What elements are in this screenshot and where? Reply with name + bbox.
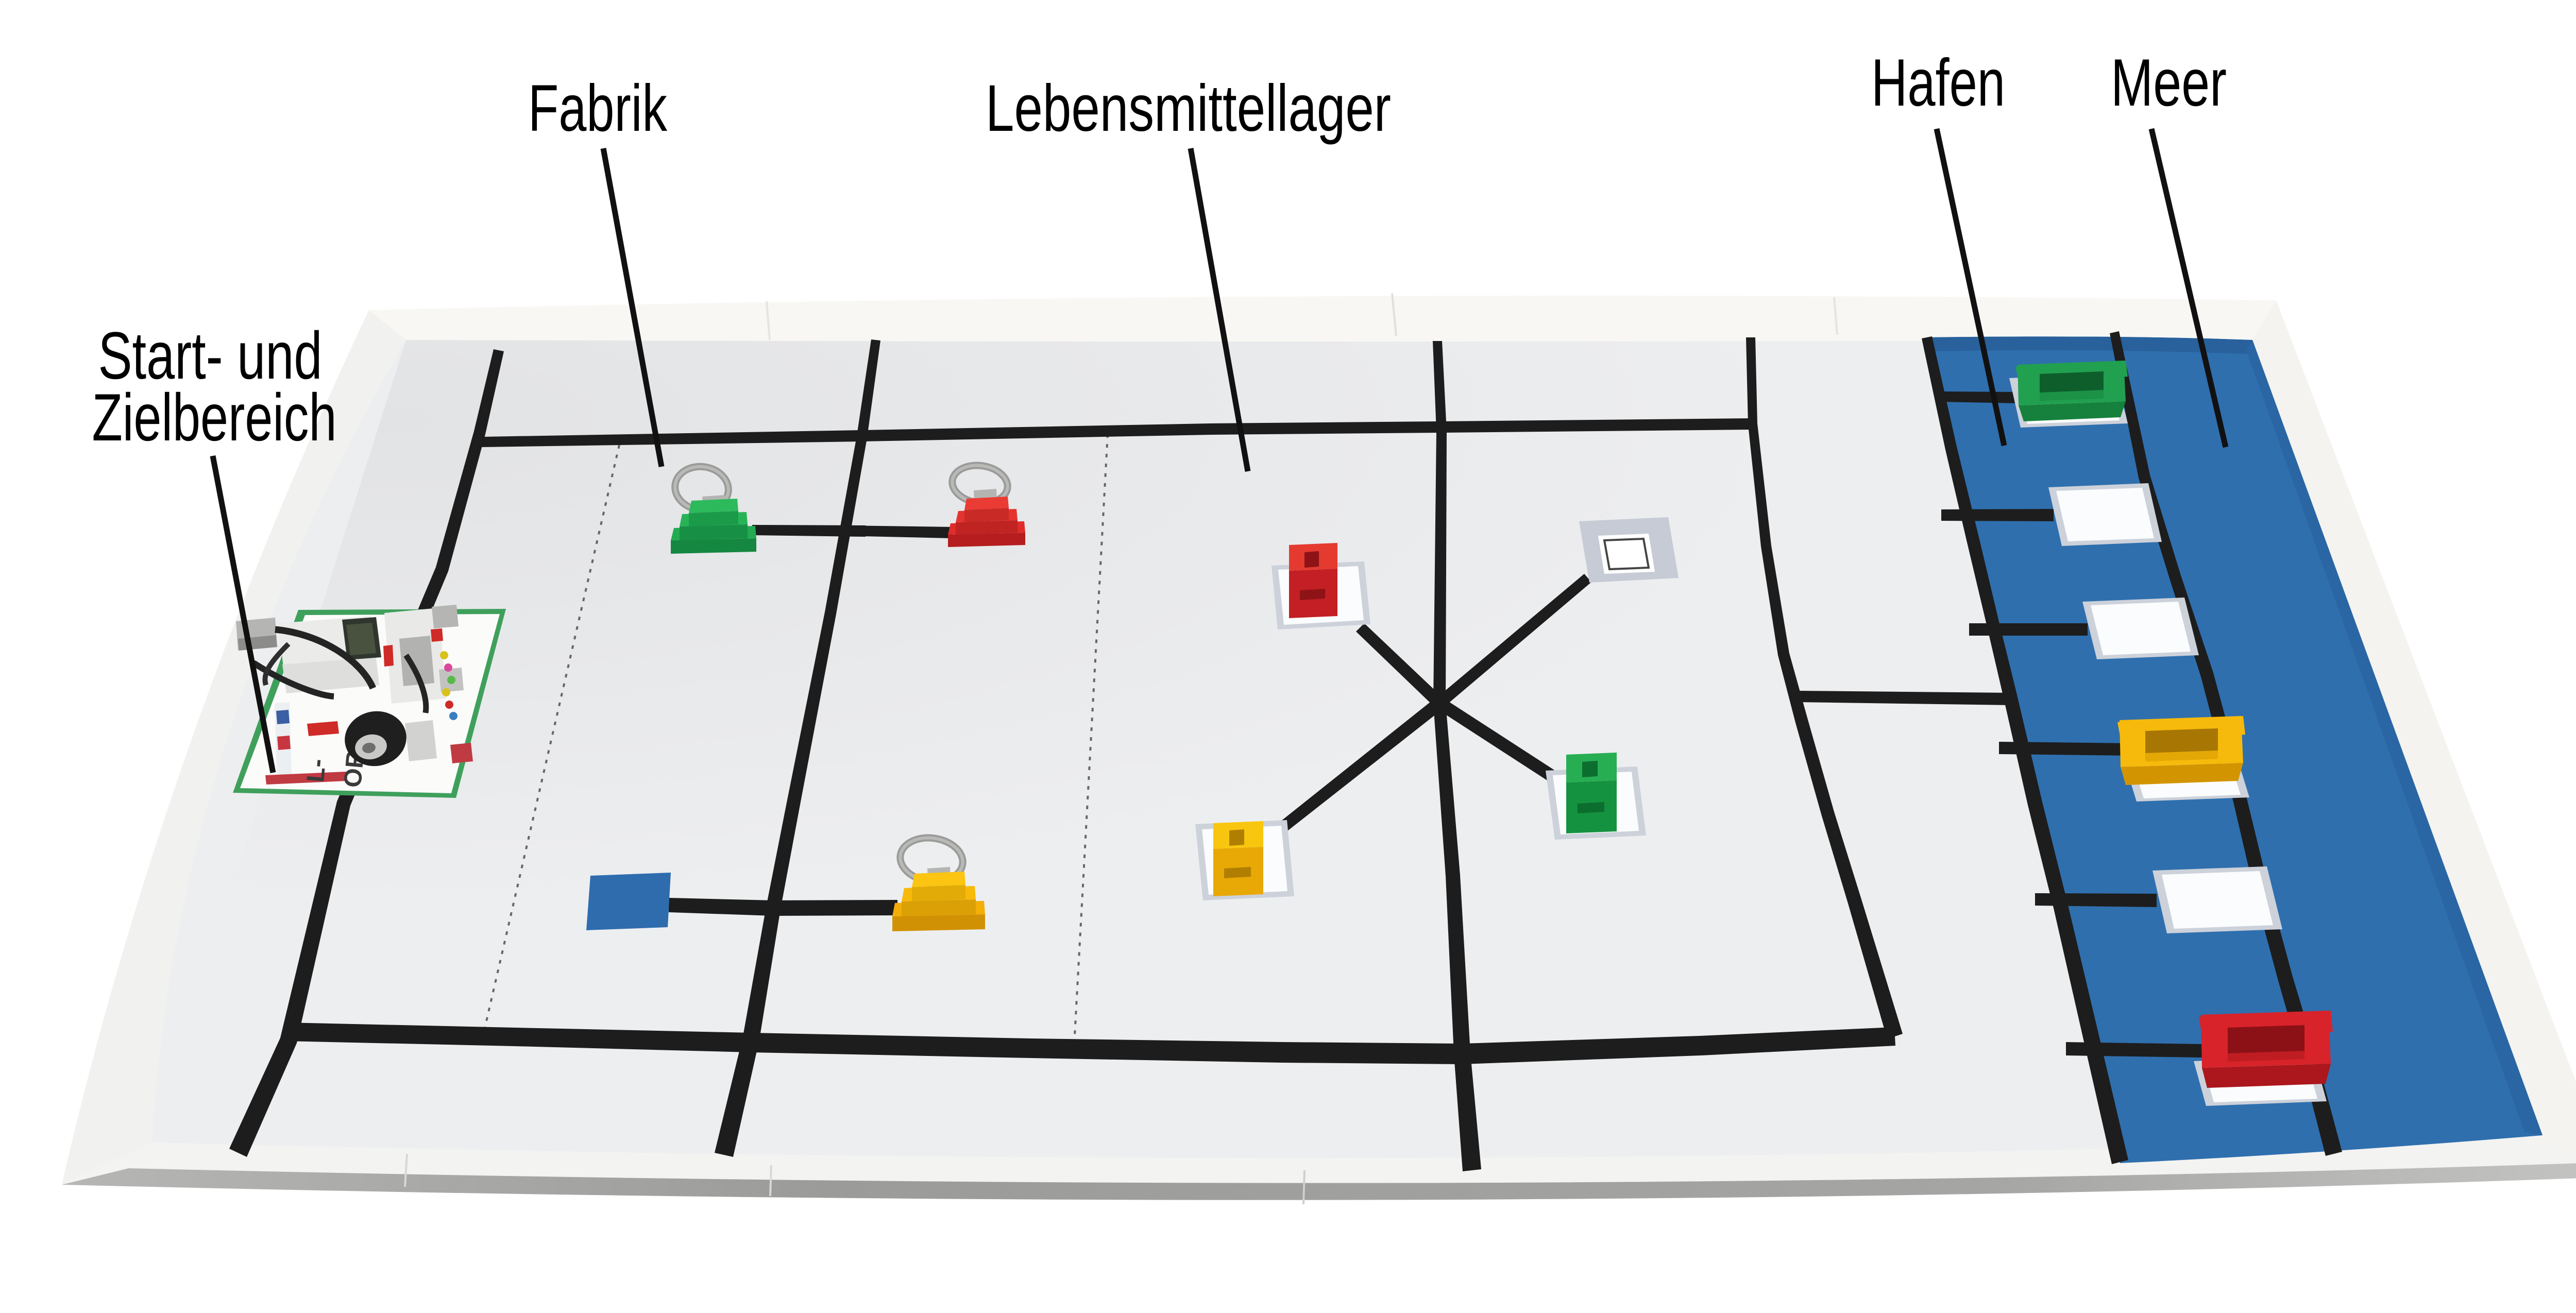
svg-text:Hafen: Hafen [1871,45,2005,120]
svg-text:Zielbereich: Zielbereich [92,380,337,455]
svg-text:L-: L- [302,758,331,783]
svg-text:Lebensmittellager: Lebensmittellager [986,72,1391,145]
svg-text:Fabrik: Fabrik [528,72,668,145]
svg-text:Meer: Meer [2111,45,2227,120]
